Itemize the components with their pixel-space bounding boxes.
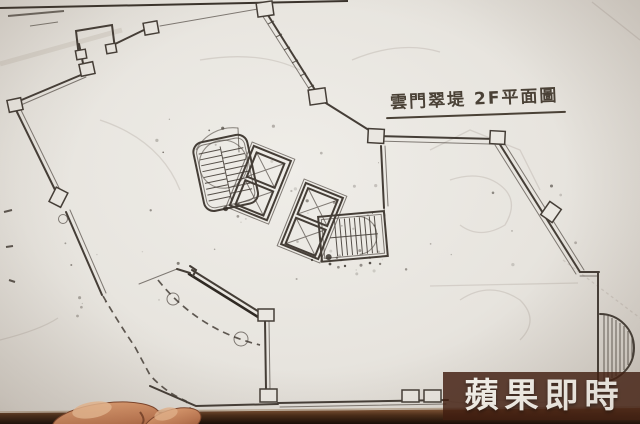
stair-core-lower (318, 211, 388, 262)
floor-plan-drawing (0, 0, 640, 424)
partition-dashed-arc (158, 280, 260, 346)
stair-core-upper (192, 133, 261, 215)
columns (7, 1, 561, 402)
floor-plan-photo: 雲門翠堤 2F平面圖 蘋果即時 (0, 0, 640, 424)
elevator-bank-lower (277, 179, 347, 263)
elevator-bank-upper (226, 142, 295, 224)
watermark-badge: 蘋果即時 (443, 372, 640, 420)
paper-creases (0, 2, 640, 340)
toner-specks (64, 119, 577, 318)
watermark-text: 蘋果即時 (459, 379, 625, 413)
paper-edge (0, 1, 348, 26)
